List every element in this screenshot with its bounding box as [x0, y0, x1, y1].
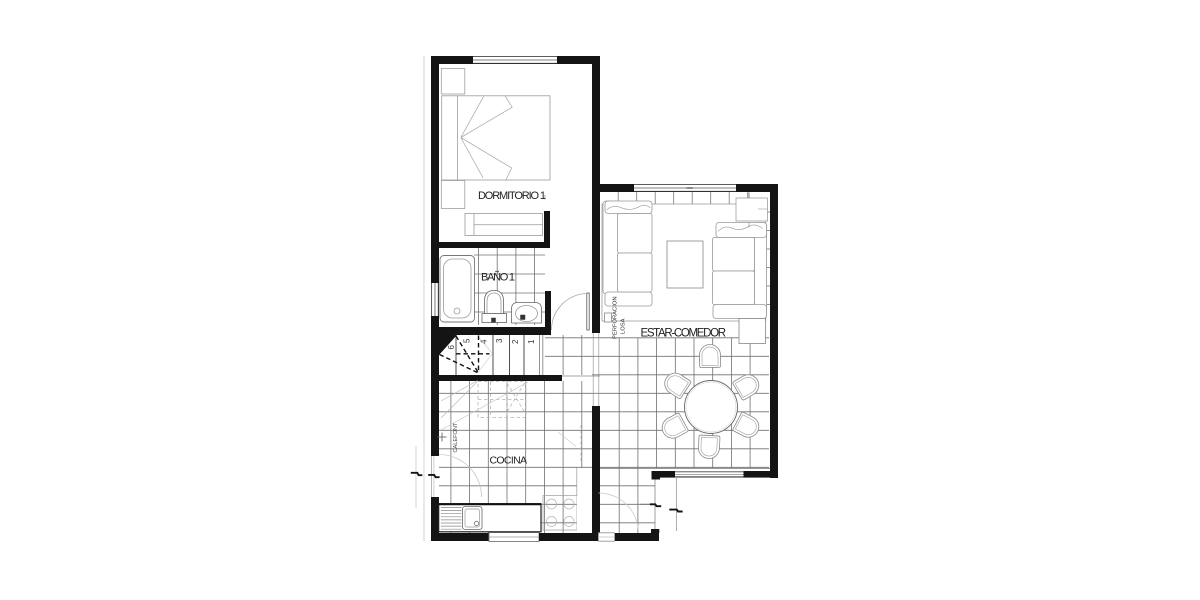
svg-text:6: 6 [447, 345, 456, 350]
svg-text:BAÑO 1: BAÑO 1 [481, 271, 515, 284]
svg-text:PERFORACION: PERFORACION [613, 296, 619, 339]
svg-text:3: 3 [495, 338, 504, 343]
svg-text:ESTAR-COMEDOR: ESTAR-COMEDOR [641, 328, 727, 340]
svg-text:5: 5 [463, 338, 472, 343]
svg-text:LOSA: LOSA [621, 318, 627, 334]
svg-text:2: 2 [511, 339, 520, 344]
svg-text:1: 1 [527, 339, 536, 344]
svg-text:COCINA: COCINA [490, 455, 528, 467]
svg-text:CALEFONT: CALEFONT [453, 422, 459, 452]
svg-text:DORMITORIO 1: DORMITORIO 1 [478, 190, 546, 202]
